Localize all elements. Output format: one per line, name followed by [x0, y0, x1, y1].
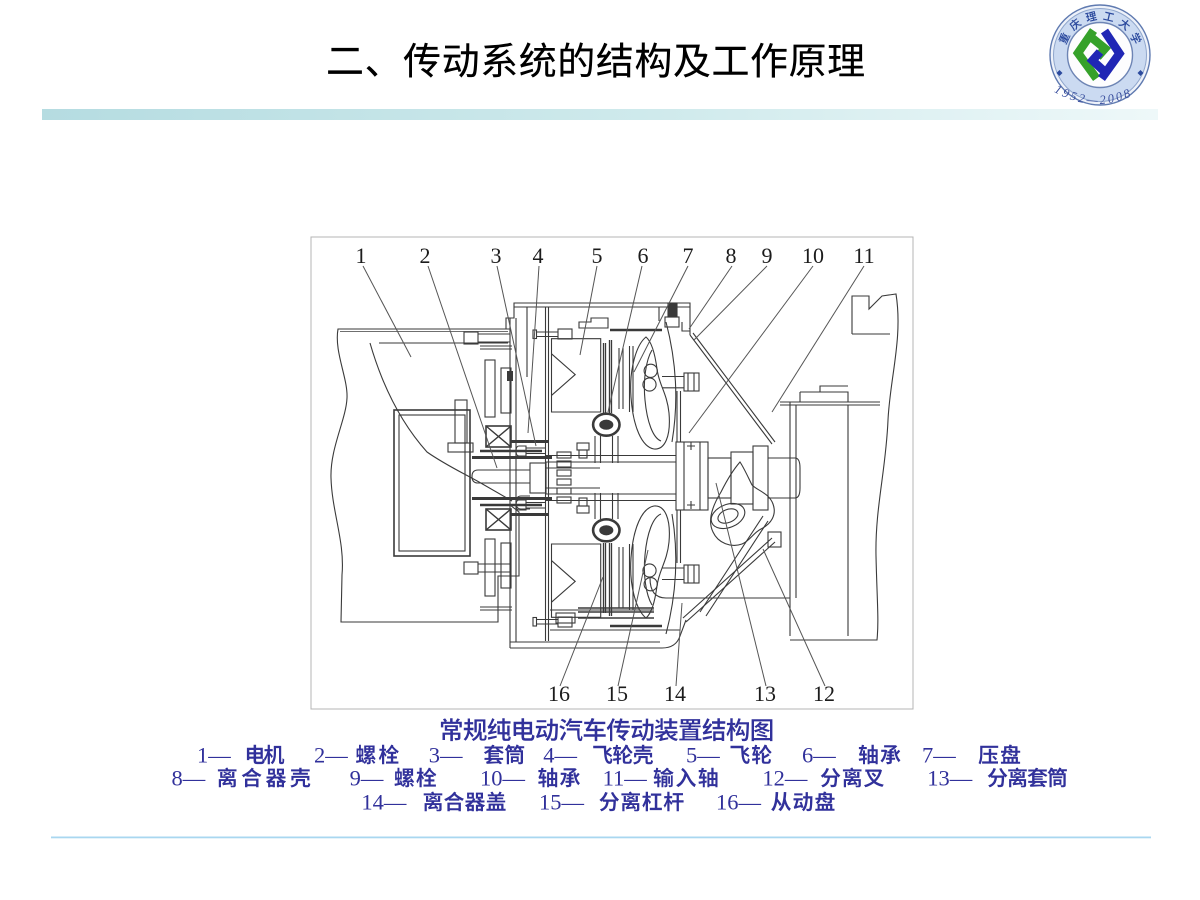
svg-text:11—: 11—	[603, 766, 648, 791]
svg-text:14—: 14—	[361, 790, 407, 815]
svg-text:10—: 10—	[480, 766, 526, 791]
svg-text:15—: 15—	[539, 790, 585, 815]
svg-text:4: 4	[533, 243, 544, 268]
svg-text:4—: 4—	[543, 743, 577, 768]
svg-text:14: 14	[664, 681, 686, 706]
svg-text:3—: 3—	[429, 743, 463, 768]
svg-text:6: 6	[638, 243, 649, 268]
svg-text:2: 2	[420, 243, 431, 268]
svg-text:6—: 6—	[802, 743, 836, 768]
svg-text:9—: 9—	[350, 766, 384, 791]
svg-text:12: 12	[813, 681, 835, 706]
svg-text:11: 11	[853, 243, 874, 268]
svg-text:16: 16	[548, 681, 570, 706]
svg-text:3: 3	[491, 243, 502, 268]
svg-text:2—: 2—	[314, 743, 348, 768]
svg-text:9: 9	[762, 243, 773, 268]
svg-text:13—: 13—	[927, 766, 973, 791]
svg-text:10: 10	[802, 243, 824, 268]
svg-text:15: 15	[606, 681, 628, 706]
svg-text:5—: 5—	[686, 743, 720, 768]
svg-text:1—: 1—	[197, 743, 231, 768]
svg-text:12—: 12—	[762, 766, 808, 791]
svg-text:16—: 16—	[716, 790, 762, 815]
svg-text:7: 7	[683, 243, 694, 268]
svg-text:8: 8	[726, 243, 737, 268]
svg-text:7—: 7—	[922, 743, 956, 768]
svg-text:5: 5	[592, 243, 603, 268]
svg-text:13: 13	[754, 681, 776, 706]
svg-text:8—: 8—	[172, 766, 206, 791]
svg-text:1: 1	[356, 243, 367, 268]
